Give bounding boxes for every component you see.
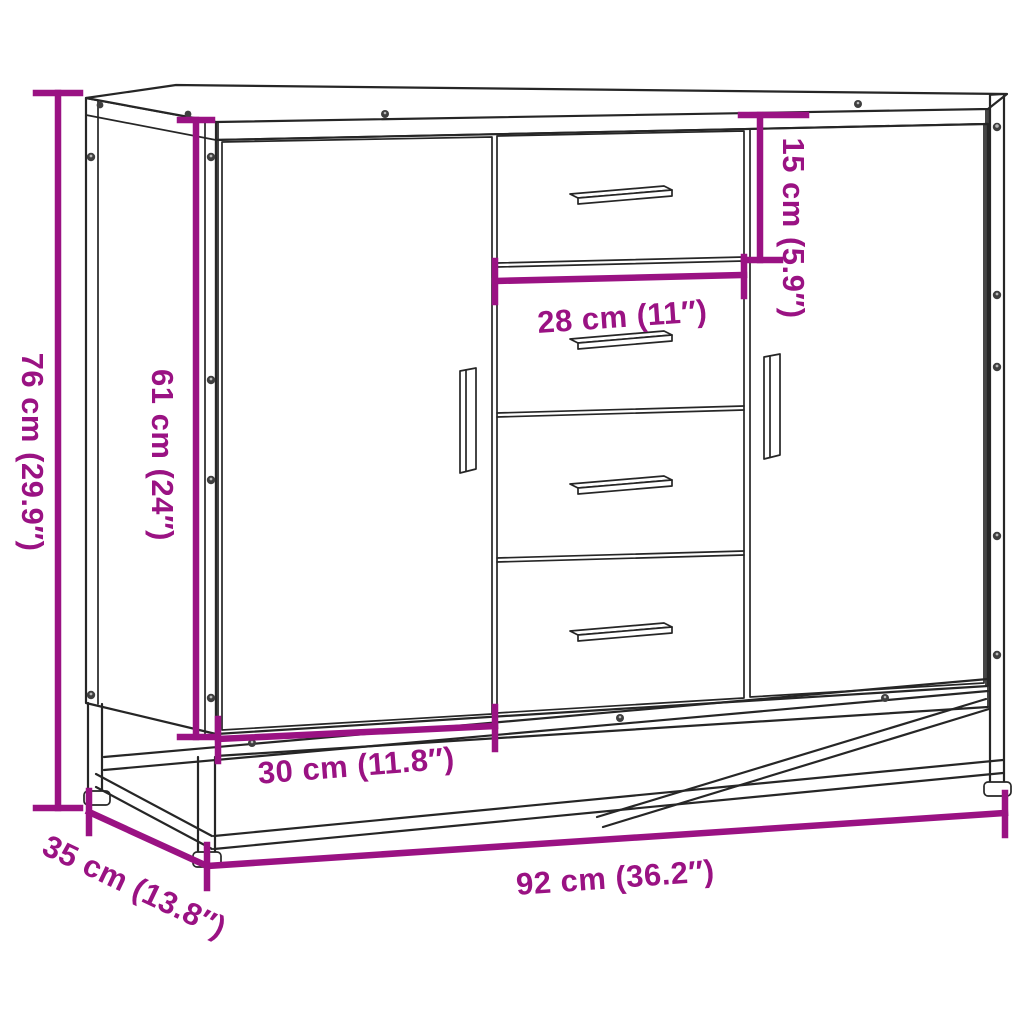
dim-overall-height: 76 cm (29.9″) (15, 93, 80, 808)
dim-overall-depth-label: 35 cm (13.8″) (37, 828, 232, 945)
dim-top-drawer-height-label: 15 cm (5.9″) (776, 137, 811, 318)
left-door-handle (460, 368, 476, 473)
screw-icon (207, 476, 215, 484)
screw-icon (381, 110, 389, 118)
sideboard-line-drawing: 76 cm (29.9″) 61 cm (24″) 15 cm (5.9″) 2… (0, 0, 1024, 1024)
screw-icon (854, 100, 862, 108)
dim-overall-width-label: 92 cm (36.2″) (515, 853, 716, 902)
screw-icon (993, 123, 1001, 131)
right-door-handle (764, 354, 780, 459)
screw-icon (993, 651, 1001, 659)
screw-icon (207, 376, 215, 384)
screw-icon (881, 694, 889, 702)
dim-cabinet-height-label: 61 cm (24″) (145, 369, 180, 541)
screw-icon (207, 153, 215, 161)
screw-icon (87, 153, 95, 161)
top-panel (86, 85, 1007, 122)
dim-overall-width: 92 cm (36.2″) (207, 793, 1005, 902)
cross-brace (597, 699, 989, 827)
dim-overall-depth: 35 cm (13.8″) (37, 791, 232, 945)
cabinet (86, 85, 1007, 782)
screw-icon (185, 111, 192, 118)
screw-icon (993, 532, 1001, 540)
screw-icon (616, 714, 624, 722)
dim-overall-height-label: 76 cm (29.9″) (15, 353, 50, 552)
screw-icon (207, 694, 215, 702)
screw-icon (97, 102, 104, 109)
screw-icon (87, 691, 95, 699)
lower-left-rail (96, 774, 212, 849)
front-face (216, 124, 988, 734)
right-post-top (990, 94, 1007, 95)
screw-icon (993, 291, 1001, 299)
dimension-diagram: 76 cm (29.9″) 61 cm (24″) 15 cm (5.9″) 2… (0, 0, 1024, 1024)
screw-icon (993, 363, 1001, 371)
dim-door-width-label: 30 cm (11.8″) (257, 740, 456, 790)
